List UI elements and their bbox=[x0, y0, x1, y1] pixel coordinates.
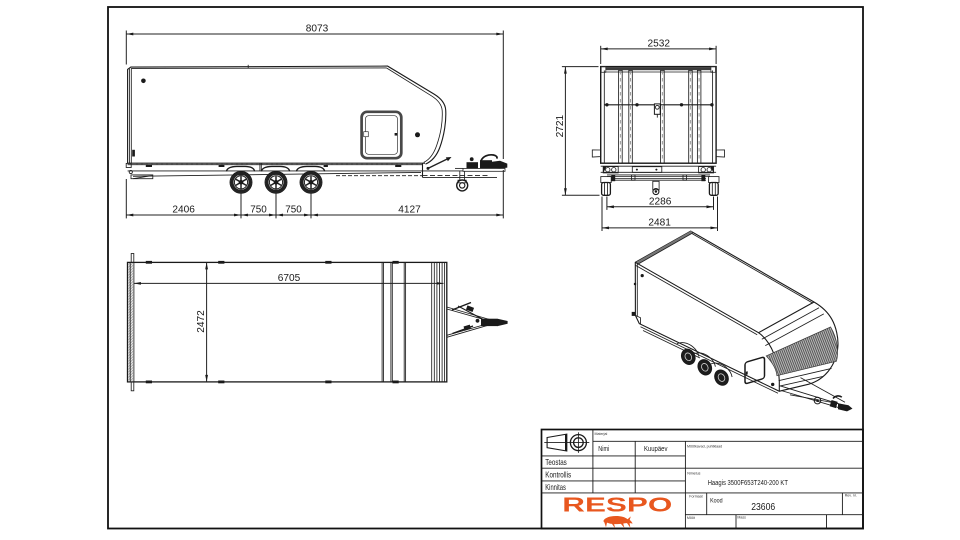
svg-text:Teostas: Teostas bbox=[545, 457, 567, 467]
svg-text:Formaat: Formaat bbox=[689, 494, 702, 498]
svg-text:2721: 2721 bbox=[555, 114, 566, 137]
svg-text:Kontrollis: Kontrollis bbox=[545, 470, 571, 480]
svg-text:Kuupäev: Kuupäev bbox=[644, 444, 668, 453]
svg-text:Mõõt: Mõõt bbox=[687, 516, 695, 520]
svg-text:750: 750 bbox=[285, 205, 302, 216]
svg-text:2286: 2286 bbox=[649, 197, 672, 208]
svg-text:Nimi: Nimi bbox=[598, 444, 609, 453]
svg-text:4127: 4127 bbox=[398, 205, 421, 216]
svg-text:2532: 2532 bbox=[648, 39, 671, 50]
svg-text:Kood: Kood bbox=[710, 497, 723, 504]
svg-text:6705: 6705 bbox=[278, 273, 301, 284]
svg-text:2472: 2472 bbox=[196, 310, 207, 333]
svg-text:23606: 23606 bbox=[751, 501, 775, 513]
svg-text:Haagis 3500F653T240-200 KT: Haagis 3500F653T240-200 KT bbox=[708, 478, 788, 487]
svg-text:Rev. nr.: Rev. nr. bbox=[845, 493, 857, 497]
svg-text:Mõõtkavad, puhtklaad: Mõõtkavad, puhtklaad bbox=[687, 444, 722, 448]
svg-text:750: 750 bbox=[250, 205, 267, 216]
svg-text:Kinnitas: Kinnitas bbox=[545, 482, 566, 492]
svg-text:RESPO: RESPO bbox=[562, 494, 672, 517]
svg-text:Nimetus: Nimetus bbox=[687, 471, 700, 475]
svg-text:2406: 2406 bbox=[172, 205, 195, 216]
svg-text:2481: 2481 bbox=[648, 218, 671, 229]
svg-text:Mass: Mass bbox=[737, 515, 746, 519]
svg-text:Materjal: Materjal bbox=[595, 432, 608, 436]
svg-text:8073: 8073 bbox=[306, 24, 329, 35]
